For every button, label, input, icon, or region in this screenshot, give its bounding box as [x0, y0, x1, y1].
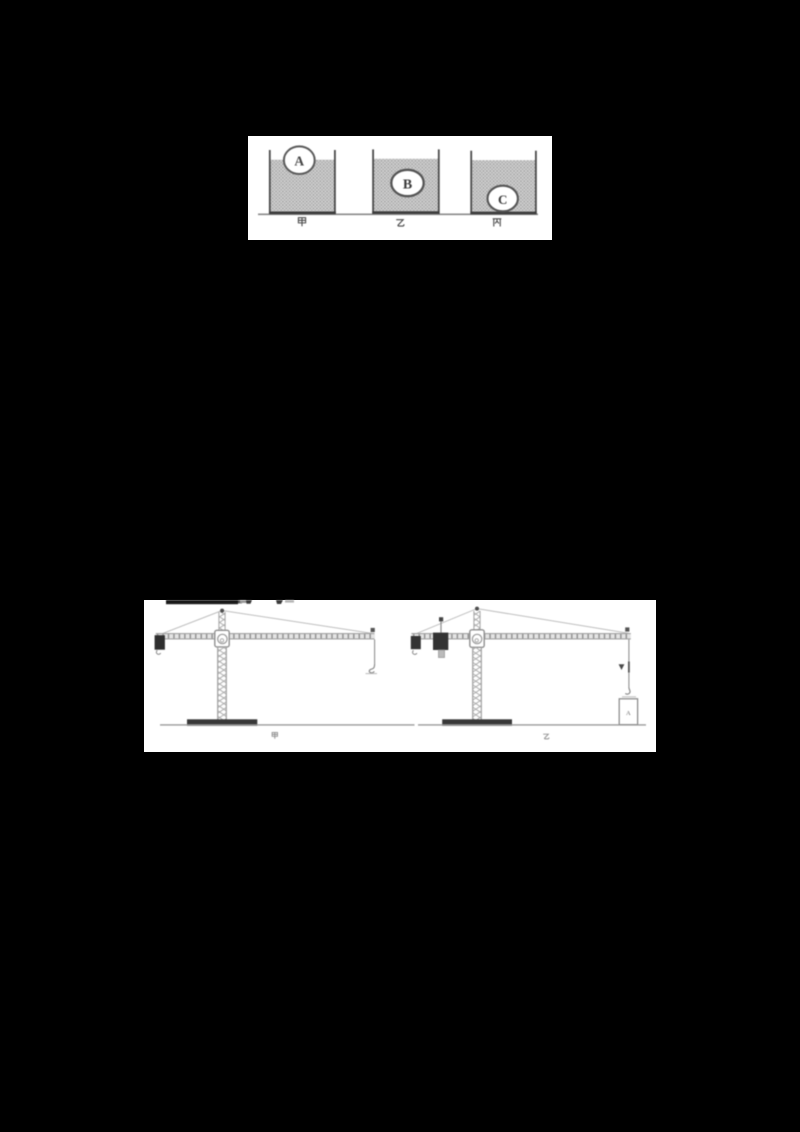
svg-text:A: A [294, 154, 304, 169]
svg-text:B: B [403, 178, 412, 193]
svg-text:A: A [626, 710, 631, 717]
svg-text:C: C [498, 192, 507, 207]
